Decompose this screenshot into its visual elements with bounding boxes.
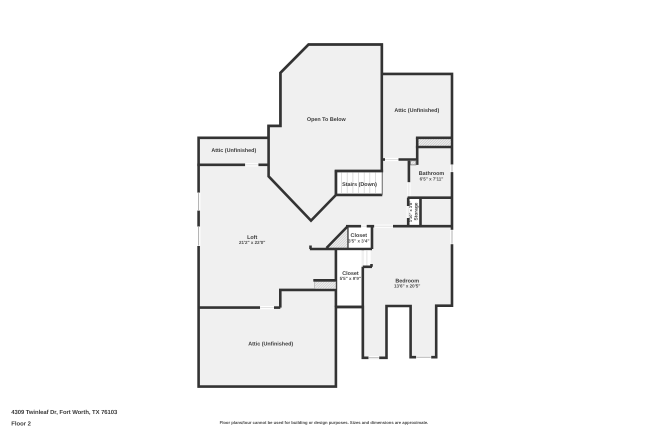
svg-text:5'5" x 8'9": 5'5" x 8'9": [340, 276, 361, 281]
svg-text:Attic (Unfinished): Attic (Unfinished): [394, 108, 439, 114]
svg-text:6'5" x 7'11": 6'5" x 7'11": [420, 176, 444, 181]
svg-text:Floor 2: Floor 2: [11, 420, 31, 427]
svg-text:4309 Twinleaf Dr, Fort Worth,: 4309 Twinleaf Dr, Fort Worth, TX 76103: [11, 409, 118, 416]
svg-text:Attic (Unfinished): Attic (Unfinished): [211, 148, 256, 154]
svg-text:Attic (Unfinished): Attic (Unfinished): [248, 341, 293, 347]
svg-text:Open To Below: Open To Below: [307, 117, 347, 123]
svg-text:21'2" x 22'0": 21'2" x 22'0": [239, 240, 265, 245]
svg-text:Floor plans/tour cannot be use: Floor plans/tour cannot be used for buil…: [220, 420, 429, 425]
svg-text:Stairs (Down): Stairs (Down): [342, 182, 377, 188]
svg-text:Storage: Storage: [414, 202, 420, 220]
svg-text:3'5" x 3'4": 3'5" x 3'4": [348, 239, 369, 244]
svg-text:1'10" x 3'8": 1'10" x 3'8": [408, 201, 413, 222]
svg-text:13'6" x 20'5": 13'6" x 20'5": [394, 284, 420, 289]
